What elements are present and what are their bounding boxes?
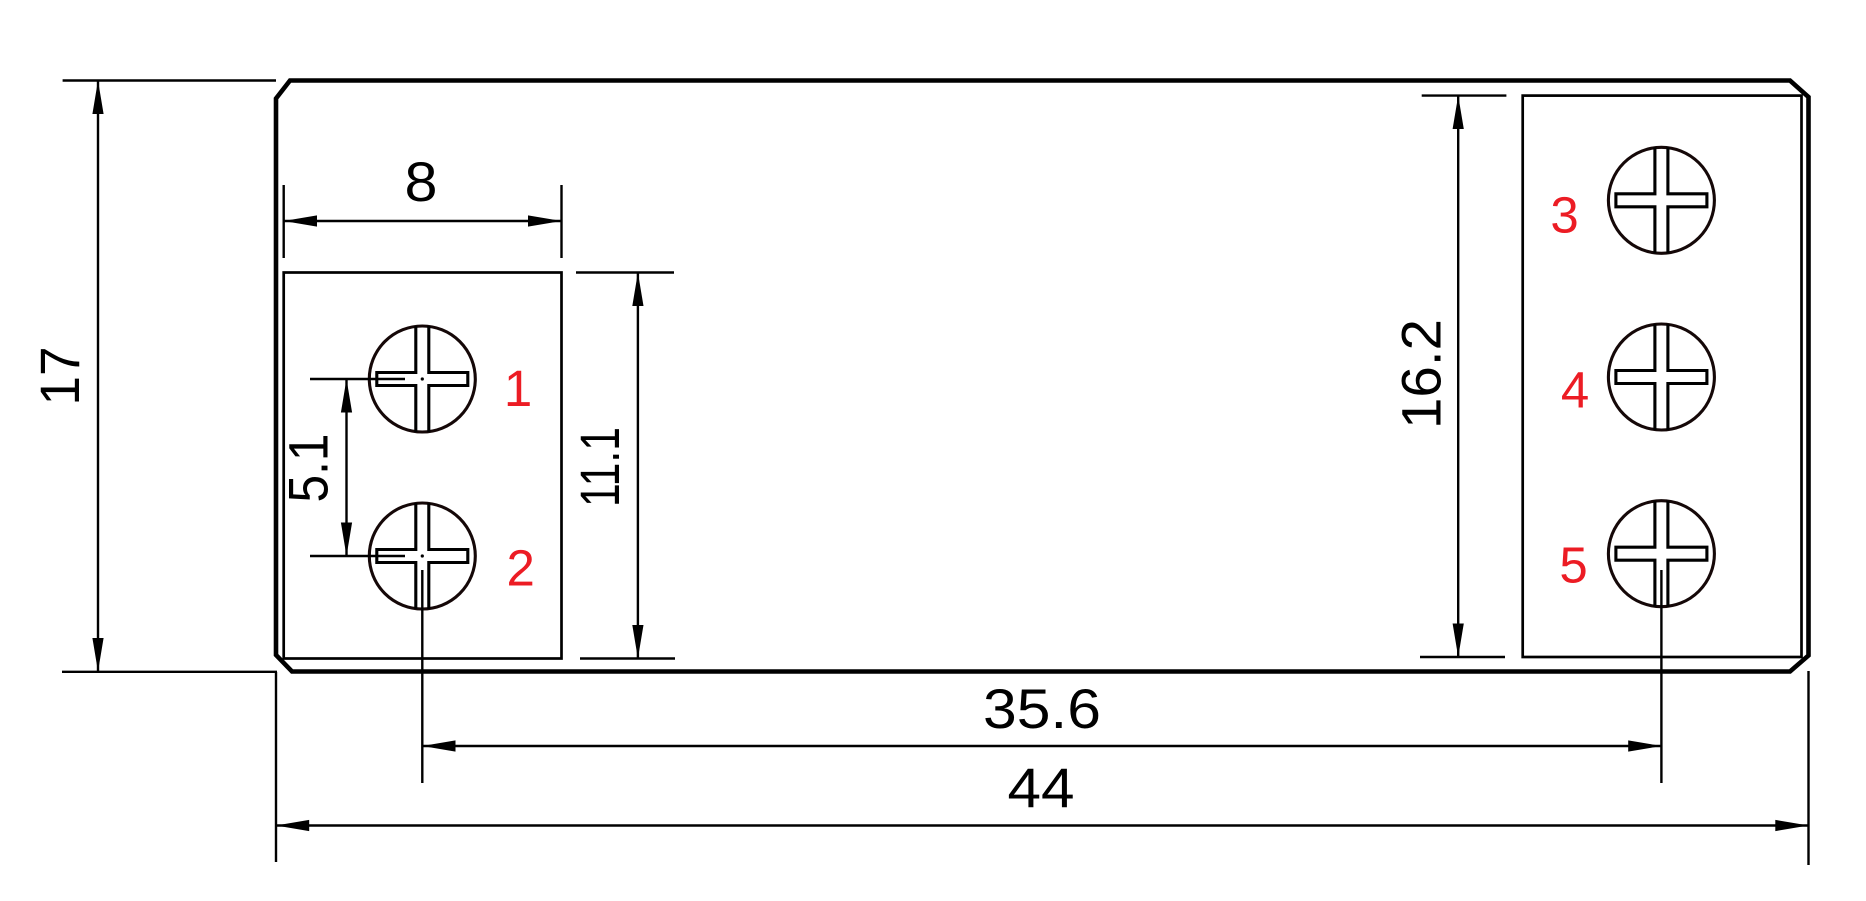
svg-text:44: 44 [1008,756,1075,819]
svg-text:35.6: 35.6 [983,677,1101,740]
svg-text:5: 5 [1559,536,1587,593]
svg-text:5.1: 5.1 [277,434,340,503]
svg-text:1: 1 [504,360,532,417]
svg-text:8: 8 [405,150,438,213]
svg-text:3: 3 [1550,186,1578,243]
svg-text:2: 2 [507,540,535,597]
svg-text:11.1: 11.1 [568,427,631,507]
svg-text:16.2: 16.2 [1389,319,1452,429]
svg-text:17: 17 [28,347,91,406]
svg-text:4: 4 [1561,362,1589,419]
